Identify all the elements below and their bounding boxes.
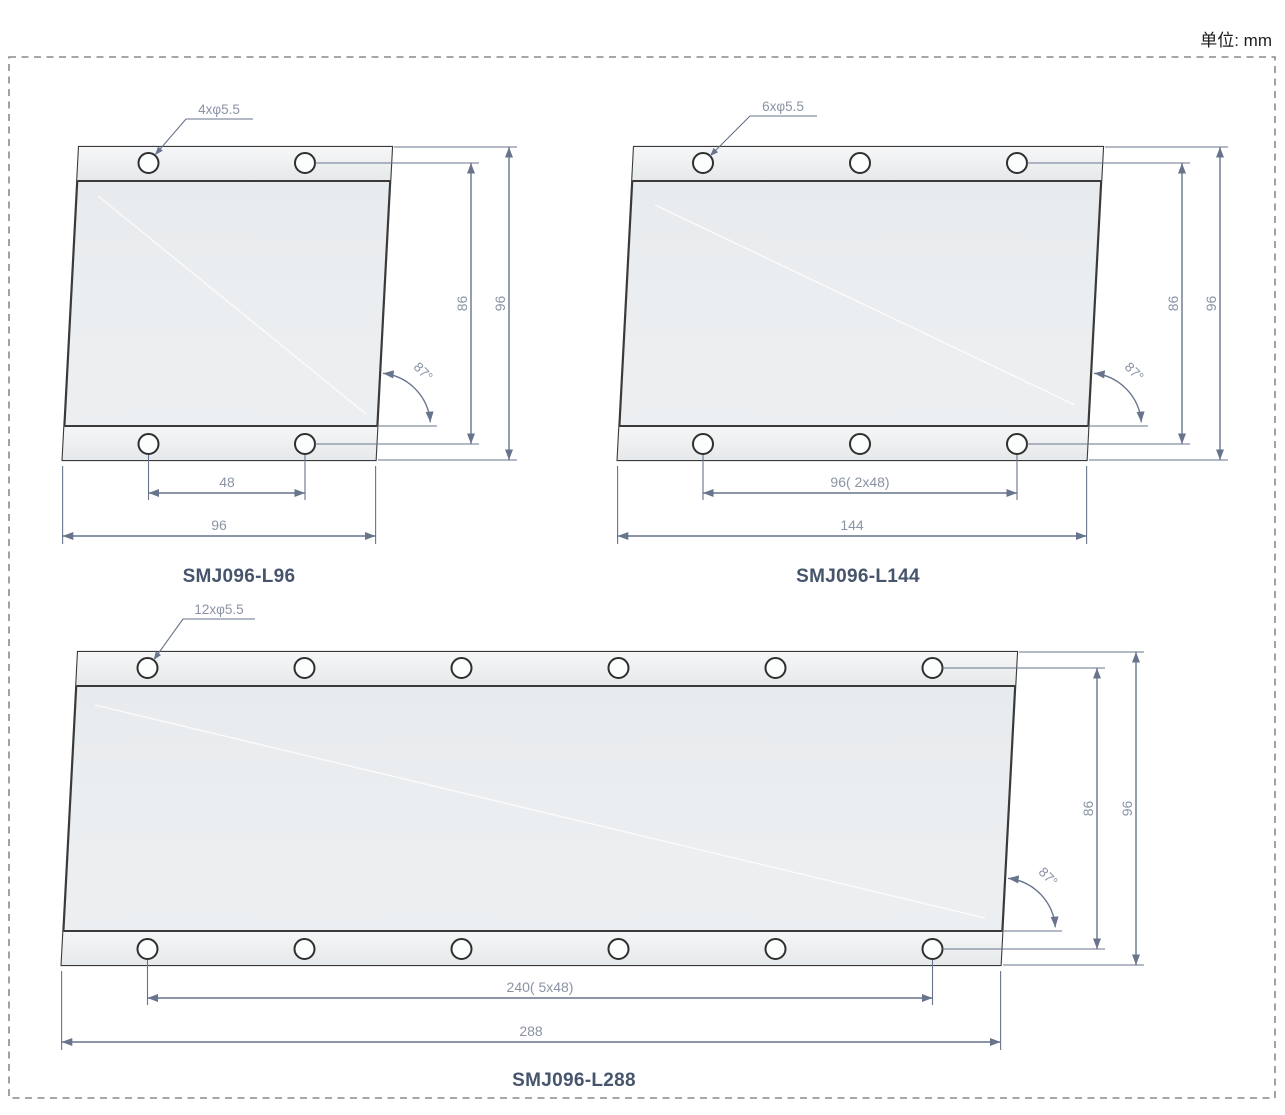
hole-row-distance-dimension: 86 [454, 296, 470, 312]
part-body [618, 147, 1103, 460]
model-label: SMJ096-L144 [796, 566, 920, 587]
mounting-hole [609, 939, 629, 959]
total-height-dimension: 96 [1203, 296, 1219, 312]
hole-pitch-dimension: 240( 5x48) [507, 979, 574, 995]
part-body [62, 652, 1017, 965]
angle-dimension: 87° [411, 359, 436, 384]
mounting-hole [923, 658, 943, 678]
model-label: SMJ096-L96 [183, 566, 296, 587]
mounting-hole [138, 658, 158, 678]
part-top-rail [77, 147, 392, 181]
mounting-hole [295, 658, 315, 678]
unit-label: 单位: mm [1200, 31, 1272, 50]
angle-dimension: 87° [1122, 359, 1147, 384]
mounting-hole [139, 153, 159, 173]
total-width-dimension: 96 [211, 517, 227, 533]
hole-pitch-dimension: 96( 2x48) [830, 474, 889, 490]
drawing-smj096-l96: 4xφ5.5 48 96 86 96 87° SMJ096-L96 [63, 102, 517, 587]
mounting-hole [609, 658, 629, 678]
total-width-dimension: 144 [840, 517, 864, 533]
part-body [63, 147, 392, 460]
mounting-hole [295, 153, 315, 173]
drawing-canvas: 单位: mm 4xφ5.5 48 96 86 96 [0, 0, 1285, 1115]
total-height-dimension: 96 [492, 296, 508, 312]
hole-row-distance-dimension: 86 [1165, 296, 1181, 312]
mounting-hole [1007, 153, 1027, 173]
mounting-hole [452, 658, 472, 678]
mounting-hole [693, 434, 713, 454]
mounting-hole [138, 939, 158, 959]
hole-row-distance-dimension: 86 [1080, 801, 1096, 817]
hole-callout-label: 4xφ5.5 [198, 102, 240, 117]
mounting-hole [295, 434, 315, 454]
angle-dimension: 87° [1036, 864, 1061, 889]
mounting-hole [766, 939, 786, 959]
mounting-hole [295, 939, 315, 959]
mounting-hole [850, 434, 870, 454]
part-top-rail [76, 652, 1017, 686]
total-width-dimension: 288 [519, 1023, 543, 1039]
technical-drawing-page: 单位: mm 4xφ5.5 48 96 86 96 [0, 0, 1285, 1115]
mounting-hole [923, 939, 943, 959]
hole-callout-label: 12xφ5.5 [194, 602, 243, 617]
hole-pitch-dimension: 48 [219, 474, 235, 490]
hole-callout-label: 6xφ5.5 [762, 99, 804, 114]
part-bottom-rail [63, 426, 378, 460]
model-label: SMJ096-L288 [512, 1070, 636, 1091]
mounting-hole [452, 939, 472, 959]
mounting-hole [850, 153, 870, 173]
mounting-hole [1007, 434, 1027, 454]
drawing-smj096-l288: 12xφ5.5 240( 5x48) 288 86 96 87° SMJ096-… [62, 602, 1144, 1091]
part-bottom-rail [62, 931, 1003, 965]
mounting-hole [766, 658, 786, 678]
mounting-hole [139, 434, 159, 454]
drawing-smj096-l144: 6xφ5.5 96( 2x48) 144 86 96 87° SMJ096-L1… [618, 99, 1228, 587]
total-height-dimension: 96 [1119, 801, 1135, 817]
